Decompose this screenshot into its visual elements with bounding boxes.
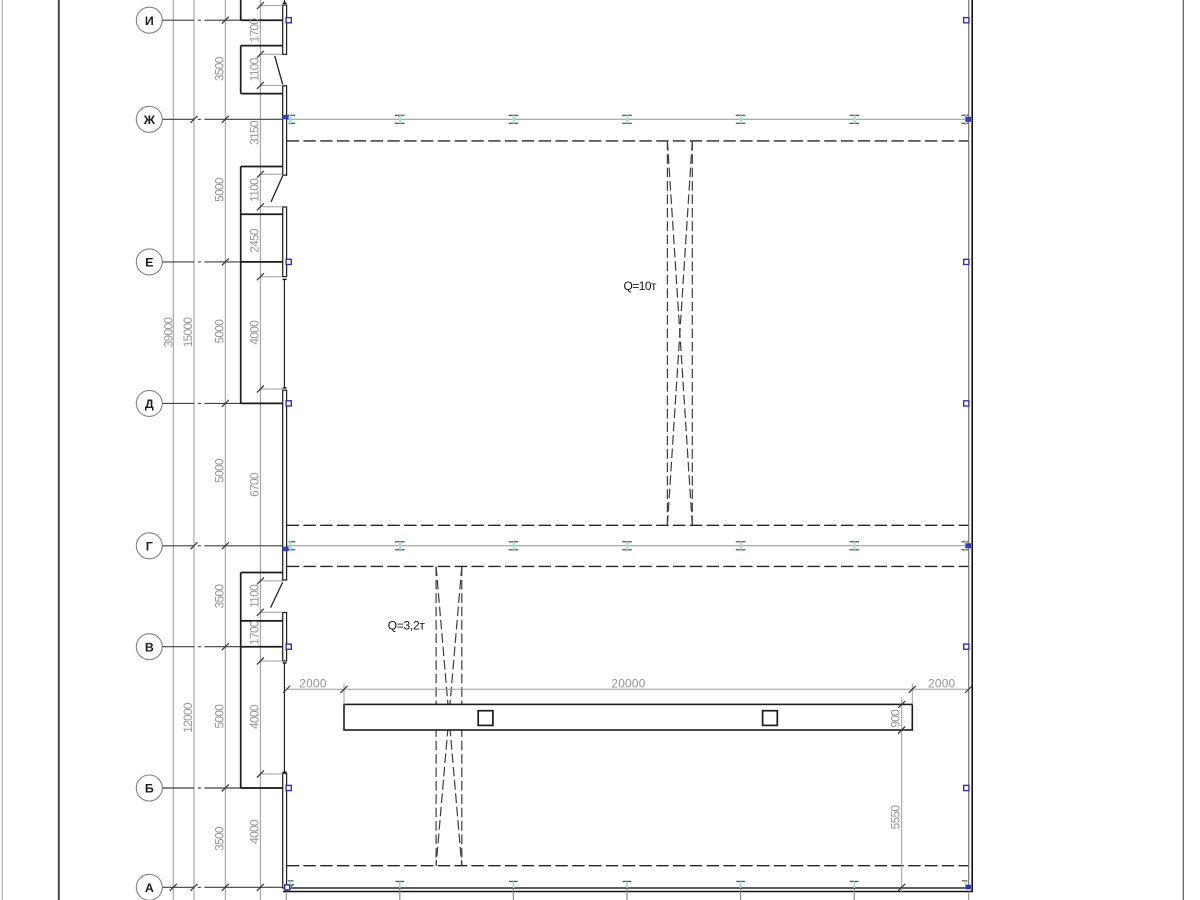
svg-text:39000: 39000 bbox=[161, 317, 175, 348]
svg-text:Д: Д bbox=[145, 397, 154, 411]
svg-text:3500: 3500 bbox=[212, 56, 226, 81]
svg-text:5000: 5000 bbox=[212, 704, 226, 729]
svg-text:3150: 3150 bbox=[247, 120, 261, 145]
svg-text:Г: Г bbox=[146, 539, 153, 553]
svg-text:5000: 5000 bbox=[212, 458, 226, 483]
svg-text:15000: 15000 bbox=[181, 317, 195, 348]
svg-text:2000: 2000 bbox=[928, 676, 956, 690]
svg-text:1100: 1100 bbox=[247, 584, 261, 608]
svg-text:В: В bbox=[145, 640, 154, 654]
svg-text:1100: 1100 bbox=[247, 57, 261, 81]
svg-text:3500: 3500 bbox=[212, 584, 226, 609]
svg-text:5000: 5000 bbox=[212, 177, 226, 202]
svg-text:6700: 6700 bbox=[247, 472, 261, 497]
svg-text:1700: 1700 bbox=[247, 620, 261, 645]
svg-text:20000: 20000 bbox=[611, 676, 645, 690]
svg-text:1100: 1100 bbox=[247, 178, 261, 202]
svg-text:4000: 4000 bbox=[247, 704, 261, 729]
svg-text:Q=3,2т: Q=3,2т bbox=[388, 618, 426, 632]
svg-text:Q=10т: Q=10т bbox=[624, 279, 657, 293]
svg-text:И: И bbox=[145, 14, 154, 28]
svg-text:4000: 4000 bbox=[247, 819, 261, 844]
svg-text:Е: Е bbox=[145, 256, 153, 270]
svg-text:А: А bbox=[145, 881, 154, 895]
svg-text:3500: 3500 bbox=[212, 826, 226, 851]
svg-text:900: 900 bbox=[889, 709, 903, 728]
svg-text:1700: 1700 bbox=[247, 18, 261, 43]
svg-text:Ж: Ж bbox=[143, 113, 156, 127]
svg-text:2000: 2000 bbox=[299, 676, 327, 690]
svg-text:5550: 5550 bbox=[889, 805, 903, 830]
svg-text:4000: 4000 bbox=[247, 320, 261, 345]
svg-text:5000: 5000 bbox=[212, 319, 226, 344]
svg-text:2450: 2450 bbox=[247, 228, 261, 253]
svg-text:Б: Б bbox=[145, 782, 154, 796]
svg-text:12000: 12000 bbox=[181, 702, 195, 733]
